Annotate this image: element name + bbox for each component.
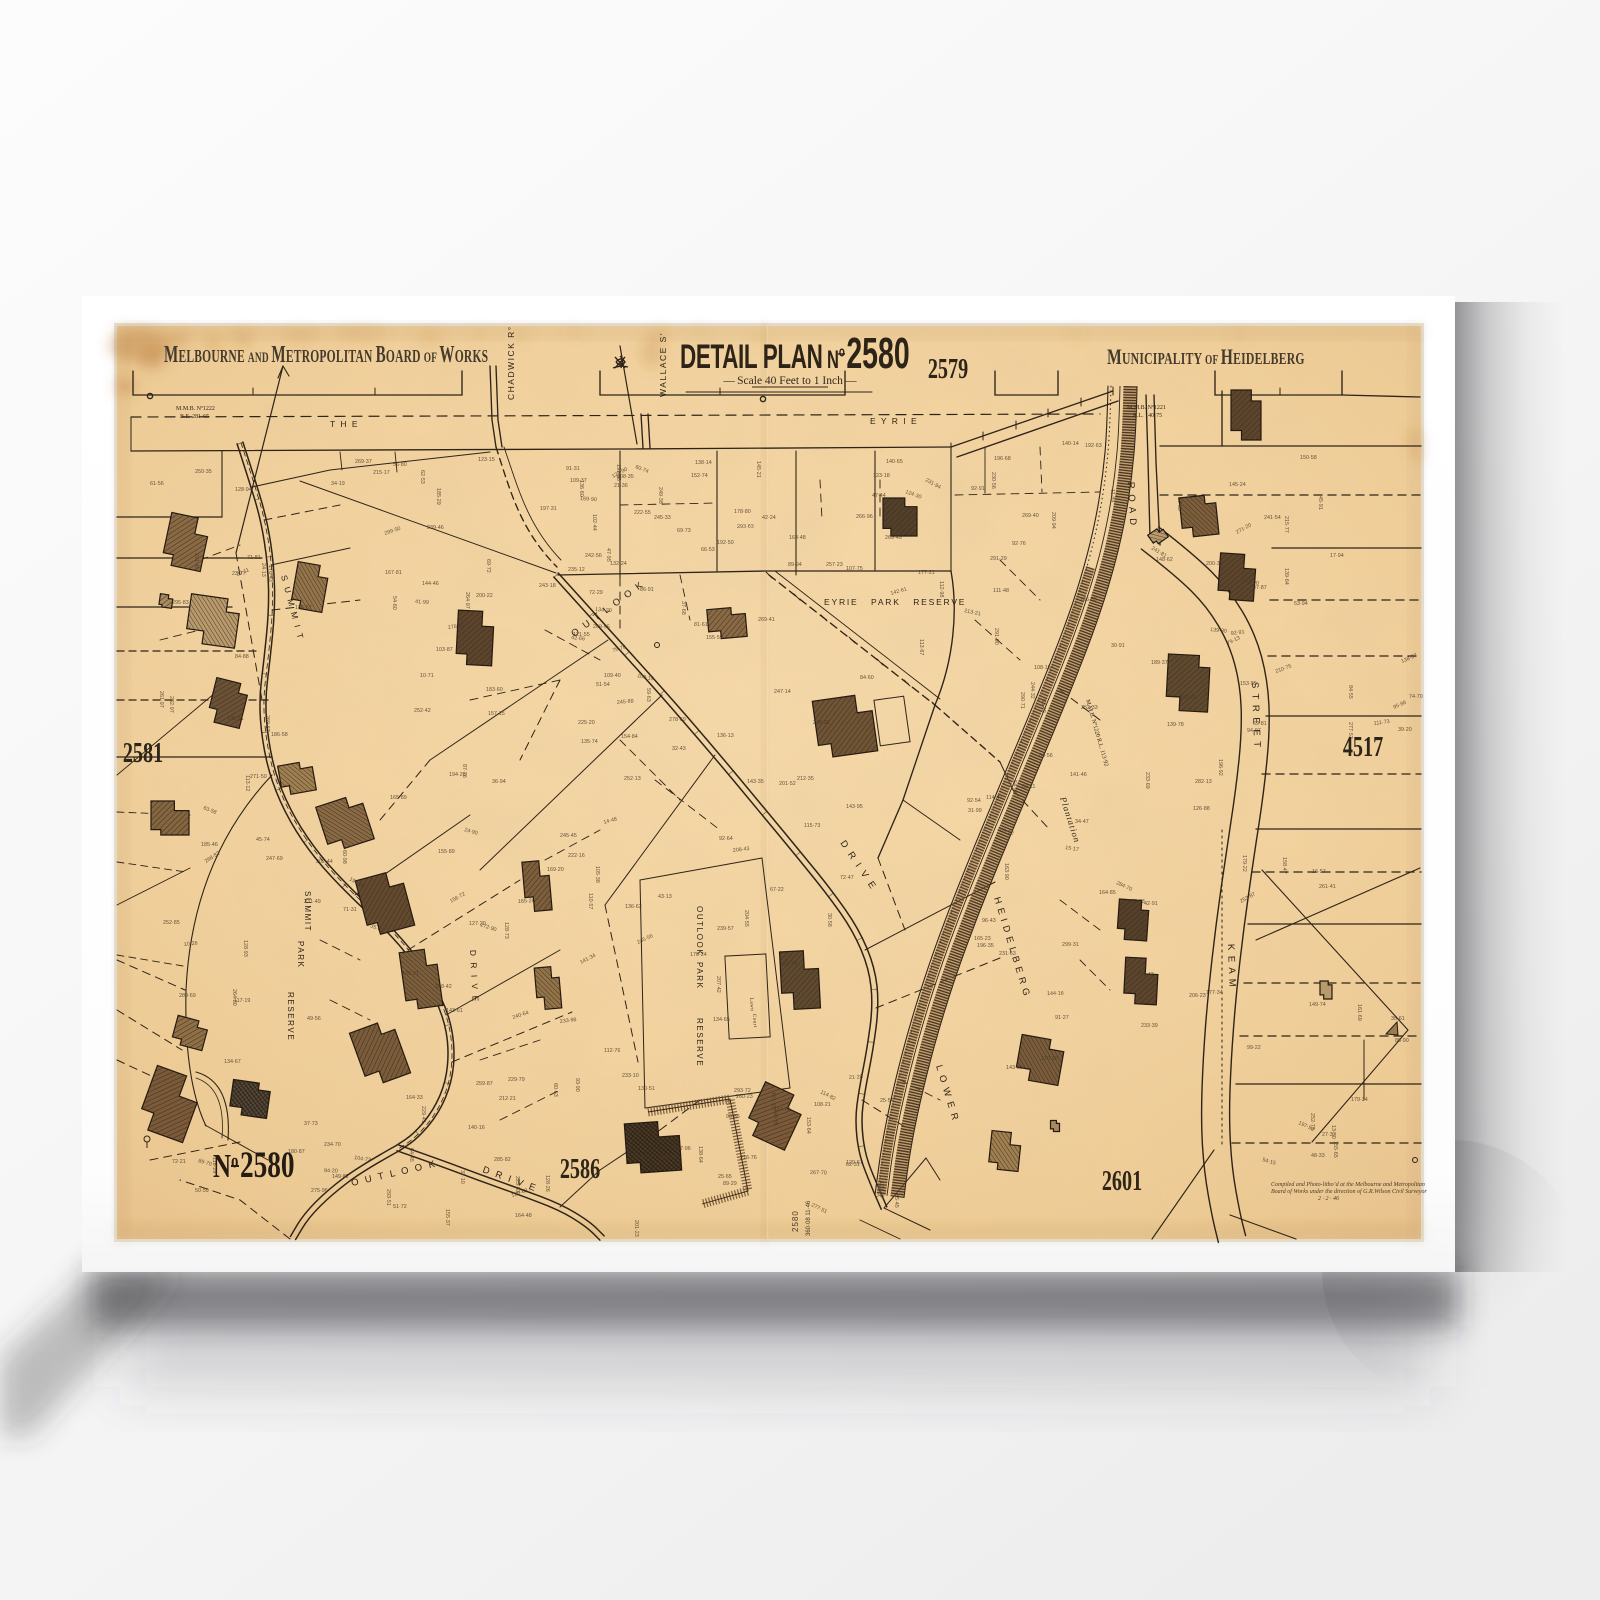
svg-text:278·69: 278·69 (669, 717, 686, 723)
svg-text:54·60: 54·60 (391, 596, 397, 610)
svg-text:120·21: 120·21 (402, 971, 419, 977)
svg-text:99·22: 99·22 (1247, 1045, 1261, 1051)
svg-text:2586: 2586 (560, 1154, 600, 1185)
svg-text:CHADWICK R°: CHADWICK R° (506, 325, 516, 400)
svg-text:25·65: 25·65 (718, 1174, 732, 1180)
svg-text:127·20: 127·20 (469, 921, 486, 927)
svg-text:200·22: 200·22 (476, 593, 493, 599)
svg-text:62·53: 62·53 (419, 470, 425, 484)
svg-text:16·57: 16·57 (1312, 869, 1326, 875)
svg-text:51·54: 51·54 (596, 682, 610, 688)
svg-text:84·88: 84·88 (235, 654, 249, 660)
svg-text:126·88: 126·88 (1193, 806, 1210, 812)
svg-text:41·99: 41·99 (415, 599, 429, 606)
svg-text:295·83: 295·83 (172, 600, 189, 606)
svg-text:212·35: 212·35 (797, 776, 814, 782)
svg-text:39·20: 39·20 (1398, 727, 1412, 733)
svg-text:264·97: 264·97 (464, 592, 470, 609)
svg-text:209·94: 209·94 (1050, 512, 1056, 529)
svg-text:K E A M: K E A M (1225, 944, 1238, 989)
svg-text:275·73: 275·73 (1128, 899, 1145, 905)
svg-text:269·34: 269·34 (660, 1155, 677, 1161)
svg-text:91·31: 91·31 (566, 466, 580, 472)
svg-text:92·76: 92·76 (1012, 541, 1026, 547)
svg-text:63·11: 63·11 (1022, 784, 1035, 790)
svg-text:R O A D: R O A D (1125, 482, 1138, 527)
svg-text:191·68: 191·68 (615, 464, 621, 481)
svg-text:S T R E E T: S T R E E T (1249, 682, 1262, 749)
svg-text:145·24: 145·24 (1229, 482, 1246, 488)
svg-text:110·57: 110·57 (587, 893, 593, 909)
svg-text:103·87: 103·87 (436, 647, 453, 653)
svg-text:108·21: 108·21 (814, 1102, 831, 1108)
svg-text:34·19: 34·19 (331, 481, 345, 487)
svg-text:139·78: 139·78 (1167, 722, 1184, 728)
svg-text:157·15: 157·15 (488, 711, 505, 717)
svg-text:17·94: 17·94 (1330, 553, 1344, 559)
svg-text:56·80: 56·80 (393, 462, 407, 468)
svg-text:111·48: 111·48 (993, 588, 1009, 594)
svg-text:215·77: 215·77 (1283, 516, 1289, 533)
svg-text:61·56: 61·56 (150, 481, 164, 487)
svg-text:169·20: 169·20 (547, 867, 564, 873)
svg-text:293·63: 293·63 (737, 524, 754, 530)
svg-text:112·98: 112·98 (938, 581, 944, 597)
svg-text:112·76: 112·76 (604, 1048, 620, 1054)
svg-text:145·21: 145·21 (755, 461, 761, 478)
svg-text:R.L. 140·75: R.L. 140·75 (1133, 413, 1162, 419)
svg-text:96·43: 96·43 (982, 918, 996, 924)
svg-text:261·97: 261·97 (158, 691, 164, 708)
svg-text:201·23: 201·23 (633, 1220, 639, 1237)
svg-text:134·67: 134·67 (224, 1059, 241, 1065)
svg-text:67·22: 67·22 (770, 887, 784, 893)
svg-text:143·61: 143·61 (446, 1008, 463, 1014)
svg-text:35·61: 35·61 (1391, 1016, 1405, 1022)
svg-text:64·45: 64·45 (408, 1148, 414, 1162)
svg-text:179·22: 179·22 (1241, 855, 1247, 872)
svg-text:293·72: 293·72 (734, 1088, 751, 1094)
svg-text:252·42: 252·42 (414, 708, 431, 714)
svg-text:234·70: 234·70 (324, 1142, 341, 1148)
svg-text:244·32: 244·32 (1029, 682, 1035, 699)
svg-text:280·69: 280·69 (179, 993, 196, 999)
svg-text:261·41: 261·41 (1319, 884, 1336, 890)
svg-text:164·85: 164·85 (1099, 890, 1116, 896)
svg-text:200·33: 200·33 (1206, 561, 1223, 567)
svg-text:149·74: 149·74 (1309, 1002, 1326, 1008)
svg-text:E Y R I E: E Y R I E (870, 416, 918, 426)
svg-text:141·46: 141·46 (1070, 772, 1087, 778)
svg-text:2 · 2 · 46: 2 · 2 · 46 (1318, 1195, 1339, 1202)
svg-text:269·40: 269·40 (1022, 513, 1039, 519)
svg-text:216·76: 216·76 (740, 1155, 757, 1161)
svg-text:Lawn: Lawn (748, 998, 754, 1012)
svg-text:128·93: 128·93 (242, 940, 248, 957)
svg-text:4517: 4517 (1343, 732, 1383, 763)
svg-text:185·29: 185·29 (435, 488, 441, 505)
svg-text:OUTLOOK: OUTLOOK (695, 906, 704, 956)
svg-text:10·71: 10·71 (420, 673, 434, 679)
svg-text:74·70: 74·70 (1409, 694, 1423, 700)
svg-text:206·23: 206·23 (1189, 993, 1206, 999)
svg-text:113·12: 113·12 (244, 775, 250, 791)
svg-text:71·31: 71·31 (343, 907, 357, 913)
svg-text:32·43: 32·43 (672, 746, 686, 752)
svg-text:2581: 2581 (123, 738, 163, 769)
svg-text:113·67: 113·67 (918, 639, 924, 655)
svg-text:167·81: 167·81 (385, 570, 402, 576)
svg-text:165·89: 165·89 (390, 795, 407, 801)
svg-text:31·99: 31·99 (968, 808, 982, 814)
svg-text:155·65: 155·65 (1332, 1141, 1338, 1158)
svg-text:222·16: 222·16 (568, 853, 585, 859)
svg-text:153·64: 153·64 (805, 1117, 811, 1134)
svg-text:247·14: 247·14 (774, 689, 791, 695)
svg-text:154·84: 154·84 (621, 734, 638, 740)
svg-text:290·71: 290·71 (1019, 692, 1025, 709)
svg-text:150·58: 150·58 (1300, 455, 1317, 461)
svg-text:189·37: 189·37 (1151, 660, 1168, 666)
svg-text:RESERVE: RESERVE (695, 1018, 704, 1067)
svg-text:T H E: T H E (330, 419, 359, 429)
svg-text:138·14: 138·14 (695, 460, 712, 466)
svg-text:72·47: 72·47 (840, 875, 854, 881)
svg-text:PARK: PARK (296, 941, 305, 969)
svg-text:M.M.B. Nº1221: M.M.B. Nº1221 (1127, 405, 1166, 411)
svg-text:Board of Works under the direc: Board of Works under the direction of G.… (1271, 1188, 1427, 1195)
svg-text:109·37: 109·37 (570, 478, 587, 484)
svg-text:30·58: 30·58 (826, 913, 832, 927)
svg-text:69·72: 69·72 (485, 559, 491, 573)
svg-text:275·96: 275·96 (311, 1188, 328, 1194)
svg-text:108·15: 108·15 (1034, 665, 1051, 671)
svg-text:107·75: 107·75 (846, 566, 863, 572)
svg-text:— Scale 40 Feet to 1 Inch —: — Scale 40 Feet to 1 Inch — (722, 375, 857, 387)
svg-text:84·60: 84·60 (860, 675, 874, 681)
svg-text:50·59: 50·59 (195, 1188, 209, 1194)
svg-text:140·65: 140·65 (886, 459, 903, 465)
svg-text:128·26: 128·26 (544, 1175, 550, 1192)
svg-text:45·91: 45·91 (1317, 496, 1323, 510)
svg-text:163·90: 163·90 (1003, 863, 1009, 880)
svg-text:49·56: 49·56 (307, 1016, 321, 1022)
svg-text:206·55: 206·55 (1080, 597, 1097, 603)
svg-text:282·97: 282·97 (168, 696, 174, 713)
svg-text:299·31: 299·31 (1062, 942, 1079, 948)
svg-text:252·13: 252·13 (624, 776, 641, 782)
svg-text:129·67: 129·67 (846, 1160, 863, 1166)
svg-text:RESERVE: RESERVE (286, 992, 295, 1041)
svg-text:128·94: 128·94 (235, 487, 252, 493)
svg-text:144·46: 144·46 (422, 581, 439, 587)
svg-text:269·41: 269·41 (758, 617, 775, 623)
svg-text:36·94: 36·94 (492, 779, 506, 785)
svg-text:225·20: 225·20 (578, 720, 595, 726)
svg-text:21·36: 21·36 (614, 483, 628, 489)
svg-text:Compiled and Photo-litho’d at: Compiled and Photo-litho’d at the Melbou… (1271, 1182, 1425, 1188)
svg-text:45·74: 45·74 (256, 837, 270, 843)
svg-text:102·44: 102·44 (591, 514, 597, 531)
svg-text:92·64: 92·64 (719, 836, 733, 842)
svg-text:170·10: 170·10 (1041, 1056, 1058, 1062)
svg-text:48·33: 48·33 (1311, 1153, 1325, 1159)
svg-text:192·50: 192·50 (717, 540, 734, 546)
svg-text:155·37: 155·37 (444, 1209, 450, 1226)
svg-text:30·91: 30·91 (1111, 643, 1125, 649)
svg-text:229·41: 229·41 (420, 1106, 426, 1123)
svg-text:24·13: 24·13 (260, 563, 266, 577)
svg-text:13·65: 13·65 (1176, 497, 1182, 511)
svg-text:90·85: 90·85 (726, 1114, 740, 1120)
svg-text:185·46: 185·46 (201, 842, 218, 848)
svg-text:114·47: 114·47 (986, 795, 1002, 801)
svg-text:123·15: 123·15 (478, 457, 495, 463)
svg-text:21·28: 21·28 (849, 1074, 863, 1081)
svg-text:252·85: 252·85 (163, 920, 180, 926)
svg-text:85·45: 85·45 (893, 1194, 899, 1208)
svg-text:60·63: 60·63 (552, 1083, 558, 1097)
svg-text:72·21: 72·21 (172, 1159, 186, 1165)
svg-text:129·49: 129·49 (878, 1181, 884, 1198)
svg-text:260·23: 260·23 (736, 1094, 753, 1100)
svg-text:EYRIE PARK RESERVE: EYRIE PARK RESERVE (824, 597, 966, 607)
svg-text:277·43: 277·43 (1137, 972, 1154, 978)
svg-text:155·59: 155·59 (706, 635, 723, 641)
svg-text:291·90: 291·90 (993, 628, 999, 645)
svg-text:222·55: 222·55 (634, 510, 651, 516)
svg-text:136·62: 136·62 (625, 904, 642, 910)
svg-text:105·38: 105·38 (594, 866, 600, 883)
svg-text:139·64: 139·64 (1283, 568, 1289, 585)
svg-text:84·56: 84·56 (1039, 753, 1053, 759)
svg-text:177·21: 177·21 (918, 570, 935, 576)
svg-text:242·56: 242·56 (585, 553, 602, 559)
svg-text:143·39: 143·39 (1006, 1065, 1023, 1071)
svg-text:37·73: 37·73 (304, 1121, 318, 1127)
svg-text:37·10: 37·10 (459, 1170, 465, 1184)
svg-text:235·12: 235·12 (568, 567, 585, 573)
svg-text:25·54: 25·54 (880, 1098, 894, 1104)
svg-text:293·51: 293·51 (385, 1189, 391, 1206)
svg-text:269·37: 269·37 (355, 459, 372, 465)
svg-text:134·65: 134·65 (713, 1017, 730, 1023)
svg-text:109·26: 109·26 (1180, 695, 1197, 701)
svg-text:126·73: 126·73 (780, 961, 797, 967)
svg-text:53·94: 53·94 (1294, 601, 1308, 607)
svg-text:177·34: 177·34 (1206, 990, 1223, 996)
svg-text:186·58: 186·58 (271, 732, 288, 738)
svg-text:158·42: 158·42 (435, 984, 452, 990)
svg-text:37·68: 37·68 (680, 601, 686, 615)
svg-text:144·16: 144·16 (1047, 991, 1064, 997)
svg-text:128·73: 128·73 (503, 922, 509, 939)
svg-text:249·38: 249·38 (657, 487, 663, 504)
svg-text:132·24: 132·24 (610, 561, 627, 567)
svg-text:165·23: 165·23 (974, 936, 991, 942)
svg-text:87·76: 87·76 (461, 764, 467, 778)
svg-text:196·68: 196·68 (994, 456, 1011, 462)
svg-text:207·42: 207·42 (715, 976, 721, 993)
svg-text:269·67: 269·67 (264, 715, 270, 732)
svg-text:92·91: 92·91 (971, 486, 985, 492)
svg-text:51·72: 51·72 (393, 1204, 407, 1210)
svg-text:85·90: 85·90 (1395, 1038, 1409, 1044)
svg-text:115·73: 115·73 (804, 823, 820, 829)
svg-text:233·10: 233·10 (622, 1073, 639, 1079)
svg-text:140·14: 140·14 (1062, 441, 1079, 447)
svg-text:158·47: 158·47 (1281, 857, 1287, 874)
svg-text:93·90: 93·90 (574, 1078, 580, 1092)
svg-text:264·80: 264·80 (231, 989, 237, 1006)
svg-text:204·55: 204·55 (743, 910, 749, 927)
svg-text:163·48: 163·48 (789, 535, 806, 541)
svg-text:196·35: 196·35 (977, 943, 994, 949)
svg-text:197·31: 197·31 (540, 506, 557, 512)
svg-text:72·29: 72·29 (589, 590, 603, 596)
svg-text:43·13: 43·13 (658, 894, 672, 900)
svg-text:178·80: 178·80 (734, 509, 751, 515)
svg-text:239·57: 239·57 (717, 926, 734, 932)
svg-text:291·45: 291·45 (193, 553, 199, 570)
svg-text:212·21: 212·21 (499, 1096, 516, 1102)
svg-text:54·90: 54·90 (1011, 780, 1017, 794)
svg-text:42·24: 42·24 (762, 515, 776, 521)
svg-text:245·33: 245·33 (654, 515, 671, 521)
svg-text:135·74: 135·74 (581, 739, 598, 745)
svg-text:SUMMIT: SUMMIT (303, 891, 312, 932)
svg-text:2601: 2601 (1102, 1166, 1142, 1197)
svg-text:152·74: 152·74 (691, 473, 708, 479)
svg-text:66·53: 66·53 (701, 547, 715, 553)
svg-text:47·44: 47·44 (872, 493, 886, 499)
svg-text:138·64: 138·64 (697, 1146, 703, 1163)
svg-text:69·73: 69·73 (677, 528, 691, 534)
svg-text:233·69: 233·69 (1144, 772, 1150, 789)
svg-text:B.E. 281·65: B.E. 281·65 (180, 414, 209, 420)
svg-text:47·95: 47·95 (605, 548, 611, 562)
svg-text:WALLACE S′: WALLACE S′ (658, 332, 668, 397)
svg-text:191·18: 191·18 (770, 1092, 776, 1109)
svg-text:2580: 2580 (791, 1210, 800, 1232)
svg-text:143·95: 143·95 (846, 804, 863, 810)
svg-text:196·92: 196·92 (1217, 759, 1223, 776)
svg-text:81·61: 81·61 (694, 622, 708, 628)
svg-text:127·96: 127·96 (674, 1146, 691, 1152)
svg-text:123·18: 123·18 (873, 473, 890, 479)
svg-text:183·60: 183·60 (486, 687, 503, 693)
svg-text:140·16: 140·16 (468, 1125, 485, 1131)
svg-text:202·44: 202·44 (316, 859, 333, 865)
svg-text:233·39: 233·39 (1141, 1023, 1158, 1029)
svg-text:11·89: 11·89 (1109, 489, 1115, 502)
svg-text:164·48: 164·48 (515, 1213, 532, 1219)
svg-text:155·89: 155·89 (438, 849, 455, 855)
svg-text:266·96: 266·96 (856, 514, 873, 520)
svg-text:71·81: 71·81 (247, 555, 261, 561)
svg-text:M.M.B. Nº1222: M.M.B. Nº1222 (176, 406, 215, 412)
svg-text:165·26: 165·26 (518, 898, 535, 905)
svg-text:27·37: 27·37 (1322, 1132, 1336, 1138)
svg-text:176·43: 176·43 (267, 565, 273, 582)
svg-text:83·42: 83·42 (1040, 699, 1046, 713)
svg-text:267·70: 267·70 (810, 1170, 827, 1176)
svg-text:161·69: 161·69 (1356, 1004, 1362, 1021)
svg-text:169·90: 169·90 (580, 496, 597, 503)
svg-text:285·82: 285·82 (494, 1157, 511, 1163)
svg-text:92·54: 92·54 (967, 798, 981, 804)
svg-text:2579: 2579 (928, 354, 968, 385)
svg-text:257·23: 257·23 (826, 562, 843, 568)
svg-text:179·34: 179·34 (1351, 1097, 1368, 1103)
svg-text:245·45: 245·45 (560, 833, 577, 839)
svg-text:PARK: PARK (695, 962, 704, 990)
svg-text:229·79: 229·79 (508, 1077, 525, 1083)
svg-text:250·35: 250·35 (195, 469, 212, 475)
svg-text:360·08 11·46: 360·08 11·46 (806, 1200, 812, 1236)
svg-text:291·29: 291·29 (990, 556, 1007, 562)
svg-text:185·81: 185·81 (227, 716, 244, 722)
svg-text:239·46: 239·46 (427, 525, 444, 531)
svg-text:248·38: 248·38 (813, 720, 830, 726)
svg-text:282·13: 282·13 (1195, 779, 1212, 785)
svg-text:269·49: 269·49 (885, 535, 902, 541)
svg-text:247·69: 247·69 (266, 856, 283, 862)
svg-text:60·98: 60·98 (341, 850, 347, 864)
svg-text:143·35: 143·35 (747, 779, 764, 785)
svg-text:89·29: 89·29 (723, 1181, 737, 1187)
svg-text:MELBOURNE AND METROPOLITAN BOA: MELBOURNE AND METROPOLITAN BOARD OF WORK… (164, 342, 488, 368)
svg-text:192·63: 192·63 (1085, 443, 1102, 449)
svg-text:164·33: 164·33 (406, 1095, 423, 1101)
svg-text:59·63: 59·63 (645, 688, 651, 702)
svg-text:No2580: No2580 (213, 1145, 295, 1186)
svg-text:241·54: 241·54 (1264, 515, 1281, 521)
svg-text:136·13: 136·13 (717, 733, 734, 739)
svg-text:109·40: 109·40 (604, 673, 621, 679)
svg-text:140·85: 140·85 (772, 1109, 778, 1126)
svg-text:84·55: 84·55 (1347, 685, 1353, 699)
svg-text:42·91: 42·91 (1144, 901, 1158, 907)
svg-text:201·52: 201·52 (779, 781, 796, 787)
svg-text:259·87: 259·87 (476, 1081, 493, 1087)
svg-text:243·18: 243·18 (539, 583, 556, 589)
svg-text:91·27: 91·27 (1055, 1015, 1069, 1021)
svg-text:230·56: 230·56 (990, 472, 996, 489)
svg-text:130·51: 130·51 (638, 1086, 655, 1092)
svg-text:271·50: 271·50 (250, 774, 267, 780)
svg-text:89·94: 89·94 (788, 562, 802, 568)
svg-text:Court: Court (751, 1014, 757, 1028)
svg-text:149·82: 149·82 (332, 1174, 349, 1180)
svg-text:215·17: 215·17 (373, 470, 390, 476)
